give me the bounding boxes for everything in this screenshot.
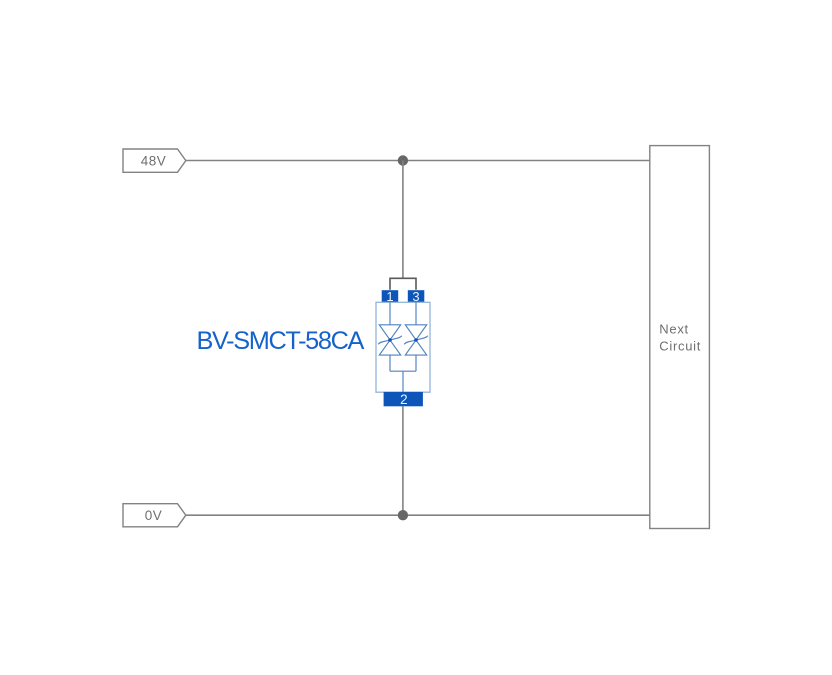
svg-text:0V: 0V <box>145 508 163 523</box>
svg-text:2: 2 <box>400 392 408 407</box>
svg-text:3: 3 <box>412 289 419 304</box>
svg-text:BV-SMCT-58CA: BV-SMCT-58CA <box>197 327 365 355</box>
svg-text:1: 1 <box>386 289 393 304</box>
svg-text:48V: 48V <box>141 153 167 168</box>
svg-text:Circuit: Circuit <box>659 338 701 353</box>
svg-text:Next: Next <box>659 322 689 337</box>
